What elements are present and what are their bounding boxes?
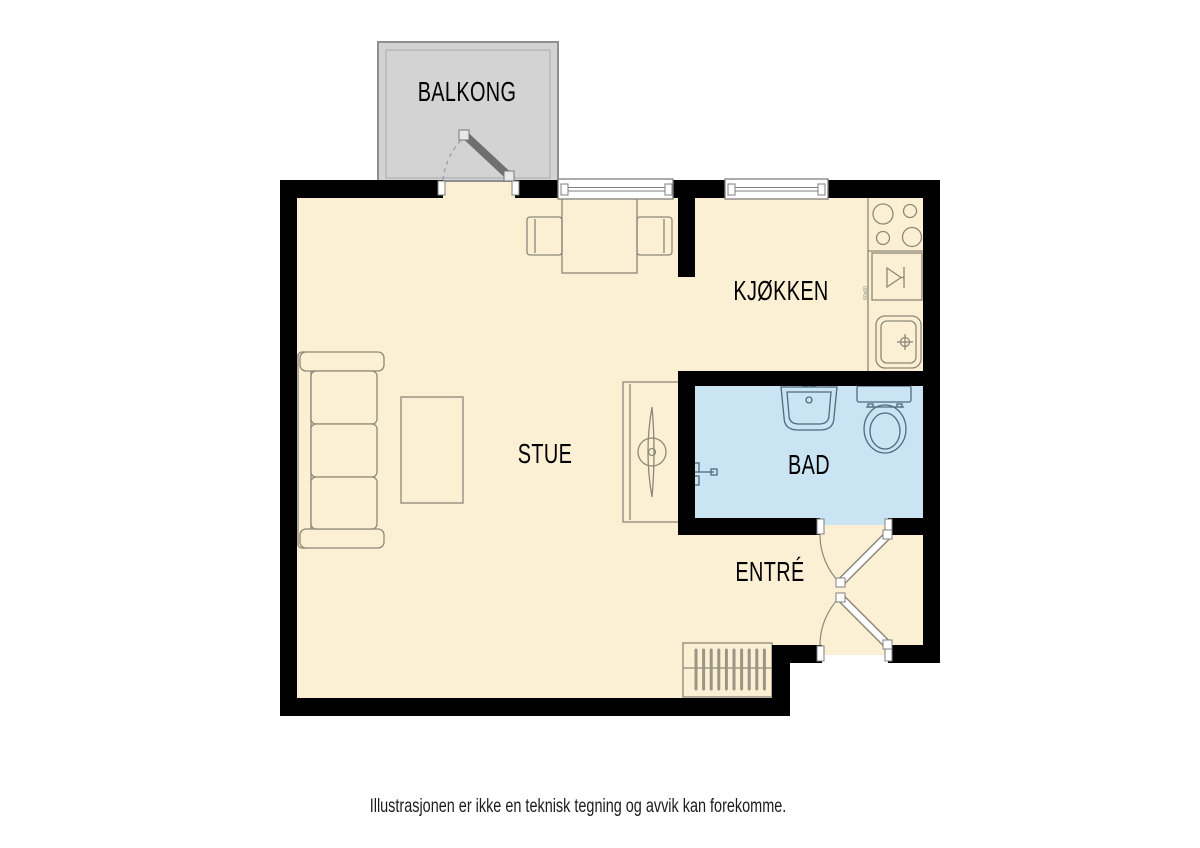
door-jamb <box>512 181 519 195</box>
wall-left <box>280 180 297 716</box>
wall-bathroom-south <box>695 518 820 535</box>
wall-entry-bottom <box>772 645 822 663</box>
wall-top <box>515 180 558 198</box>
sofa-cushion <box>311 424 377 477</box>
sofa-back <box>298 352 311 548</box>
wall-bathroom-north <box>695 371 923 386</box>
floor-balcony-threshold <box>443 181 515 198</box>
room-label-living: STUE <box>518 438 572 470</box>
wall-top <box>673 180 725 198</box>
floorplan: BALKONG KJØKKEN STUE BAD ENTRÉ 60x60 Ill… <box>0 0 1200 848</box>
wall-right <box>923 180 940 663</box>
door-jamb <box>817 646 824 661</box>
door-jamb <box>817 519 824 534</box>
room-label-bathroom: BAD <box>788 449 830 481</box>
room-label-entrance: ENTRÉ <box>735 556 804 588</box>
wall-bathroom-south <box>888 518 923 535</box>
door-leaf-cap <box>836 578 845 587</box>
dishwasher-size-label: 60x60 <box>863 286 869 300</box>
window-frame <box>725 179 828 199</box>
sofa-arm-top <box>300 352 384 371</box>
door-leaf-cap <box>883 530 892 539</box>
room-label-kitchen: KJØKKEN <box>733 275 828 307</box>
room-label-balcony: BALKONG <box>418 76 517 108</box>
window-end-cap <box>665 184 672 195</box>
floorplan-drawing <box>0 0 1200 848</box>
window-kitchen <box>725 179 828 199</box>
door-leaf-cap <box>883 640 892 649</box>
dining-table <box>562 197 637 273</box>
sofa <box>298 352 384 548</box>
window-end-cap <box>728 184 735 195</box>
sofa-cushion <box>311 477 377 529</box>
window-frame <box>558 179 673 199</box>
wall-top <box>280 180 443 198</box>
window-end-cap <box>818 184 825 195</box>
sofa-arm-bottom <box>300 529 384 548</box>
wall-entry-bottom <box>888 645 940 663</box>
wall-bottom <box>280 698 790 716</box>
sofa-cushion <box>311 371 377 424</box>
window-living <box>558 179 673 199</box>
door-jamb <box>438 181 445 195</box>
balcony-floor <box>378 42 558 181</box>
disclaimer-caption: Illustrasjonen er ikke en teknisk tegnin… <box>370 796 787 818</box>
door-leaf-cap <box>504 171 514 181</box>
wall-kitchen-stub <box>678 197 695 277</box>
door-leaf-cap <box>459 130 469 140</box>
door-leaf-cap <box>836 593 845 602</box>
wall-bathroom-west <box>678 371 695 535</box>
window-end-cap <box>561 184 568 195</box>
